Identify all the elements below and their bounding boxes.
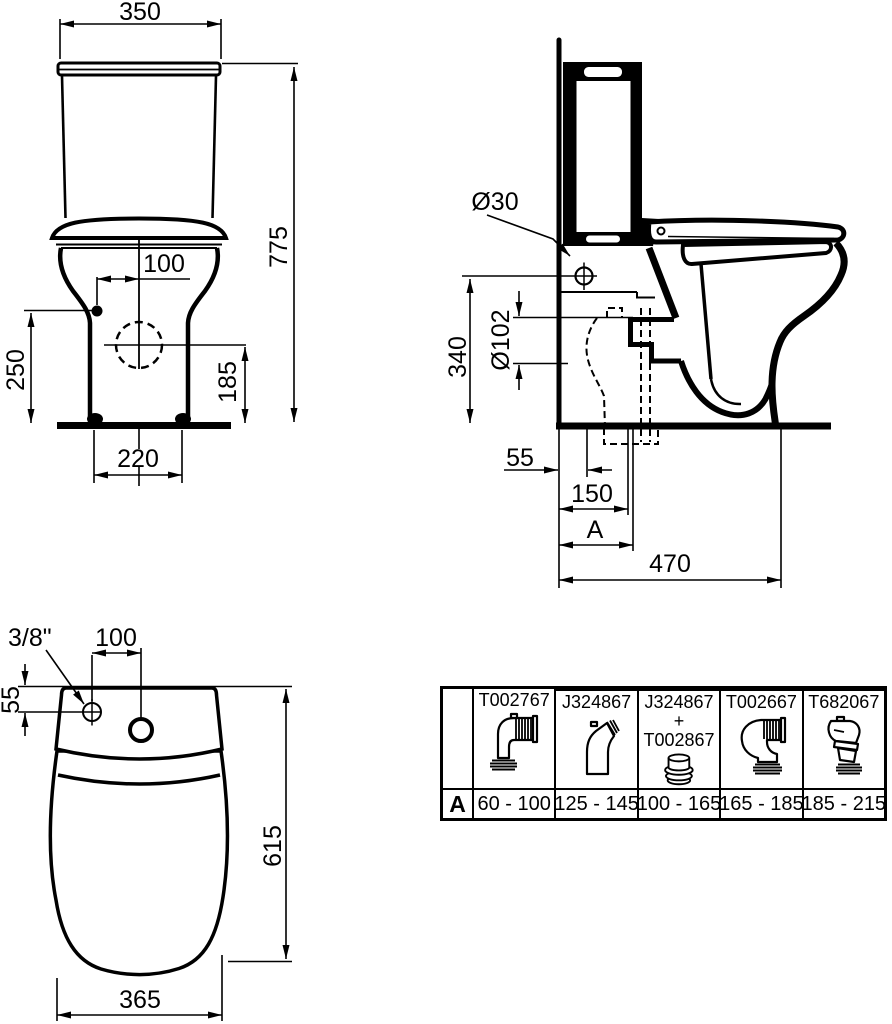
dim-plan-supply-offset-x: 100: [95, 624, 137, 652]
supply-hole-dot: [92, 306, 103, 317]
table-part-cell: T002667: [719, 689, 801, 788]
table-part-cell: T682067: [802, 689, 884, 788]
cistern-profile: [563, 62, 642, 246]
range-cell: 125 - 145: [554, 788, 636, 818]
angled-outlet-icon: [814, 714, 874, 778]
outlet-spigot: [631, 320, 682, 362]
dim-supply-from-wall: 55: [506, 444, 534, 472]
dim-outlet-height: 185: [214, 361, 242, 403]
elbow-corrugated-outlet-icon: [731, 714, 791, 778]
elbow-horizontal-outlet-icon: [484, 712, 544, 776]
table-part-cell: T002767: [472, 689, 554, 788]
flush-valve-hole: [130, 719, 152, 741]
adapter-seal-ring-icon: [653, 751, 705, 788]
dim-adjustable-distance: A: [587, 516, 604, 544]
dim-bowl-width: 365: [119, 986, 161, 1014]
part-number: T002667: [726, 693, 797, 712]
dim-base-width: 220: [117, 445, 159, 473]
range-cell: 185 - 215: [802, 788, 884, 818]
dim-depth-from-wall: 470: [649, 550, 691, 578]
flush-button-slot: [584, 67, 622, 77]
part-number: T002767: [479, 691, 550, 710]
table-part-cell: J324867: [554, 689, 636, 788]
dim-tank-width: 350: [119, 0, 161, 26]
dim-total-depth: 615: [259, 825, 287, 867]
outlet-connector-table: T002767 J324867 J324867 + T002867: [440, 686, 887, 821]
part-number-plus: +: [674, 712, 685, 731]
dim-outlet-diameter: Ø102: [487, 309, 515, 370]
table-row-label: A: [443, 788, 472, 818]
table-part-cell: J324867 + T002867: [637, 689, 719, 788]
part-number: J324867: [644, 693, 713, 712]
side-toilet-outline: [556, 40, 844, 444]
offset-vertical-outlet-icon: [567, 714, 627, 778]
dim-inlet-hole-diameter: Ø30: [471, 188, 518, 216]
bowl-outer-profile: [772, 243, 844, 424]
range-cell: 165 - 185: [719, 788, 801, 818]
table-corner-cell: [443, 689, 472, 788]
front-view: 350 775 100 250 185 220: [2, 0, 298, 486]
plan-view: 3/8" 100 55 615 365: [0, 624, 292, 1021]
seat-ring-profile: [683, 242, 831, 264]
part-number-extra: T002867: [643, 731, 714, 750]
technical-drawing-canvas: 350 775 100 250 185 220: [0, 0, 892, 1024]
range-cell: 100 - 165: [637, 788, 719, 818]
dim-supply-thread: 3/8": [8, 624, 52, 652]
seat-hinge: [658, 228, 665, 235]
dim-supply-height: 250: [2, 349, 30, 391]
dim-total-height: 775: [265, 226, 293, 268]
dim-outlet-from-wall: 150: [571, 480, 613, 508]
range-cell: 60 - 100: [472, 788, 554, 818]
front-toilet-outline: [52, 63, 231, 426]
part-number: T682067: [808, 693, 879, 712]
dimension-drawing: 350 775 100 250 185 220: [0, 0, 892, 1024]
dim-inlet-height: 340: [444, 336, 472, 378]
side-view: Ø30 340 Ø102 55 150 A: [444, 40, 844, 588]
part-number: J324867: [562, 693, 631, 712]
dim-plan-supply-offset-y: 55: [0, 686, 25, 714]
plan-toilet-outline: [50, 688, 227, 975]
dim-supply-offset: 100: [143, 250, 185, 278]
